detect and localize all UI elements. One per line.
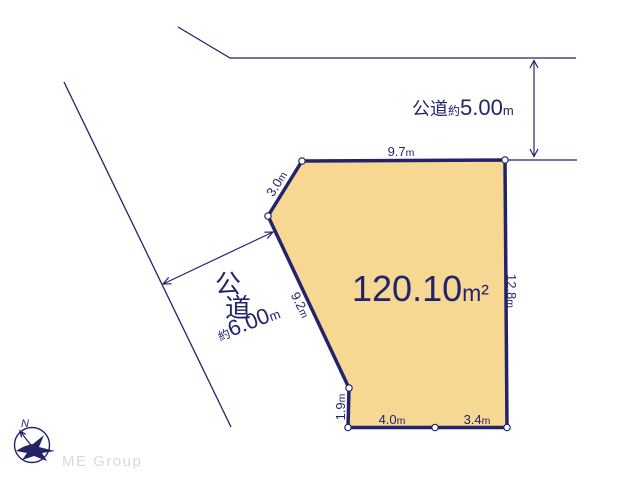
edge-label-bottom-left: 4.0m [379, 412, 406, 427]
left-road-label: 公 道 約6.00m [213, 269, 283, 346]
edge-label-lower-left: 1.9m [333, 393, 348, 420]
vertex-dot [504, 424, 510, 430]
plot-diagram: 120.10m² 9.7m 3.0m 9.2m 1.9m 4.0m 3.4m 1… [0, 0, 640, 480]
vertex-dot [346, 385, 352, 391]
plot-map-page: 120.10m² 9.7m 3.0m 9.2m 1.9m 4.0m 3.4m 1… [0, 0, 640, 480]
vertex-dot [502, 157, 508, 163]
edge-label-top: 9.7m [388, 144, 415, 159]
north-label: N [21, 418, 29, 430]
top-road-label: 公道約5.00m [412, 95, 514, 120]
top-road-upper-line [178, 27, 576, 58]
vertex-dot [265, 213, 271, 219]
edge-label-right: 12.8m [504, 274, 519, 308]
vertex-dot [345, 424, 351, 430]
left-road-line [64, 82, 231, 427]
compass: N [15, 418, 56, 463]
logo-text: ME Group [62, 453, 142, 470]
vertex-dot [432, 424, 438, 430]
edge-label-bottom-right: 3.4m [464, 412, 491, 427]
vertex-dot [299, 158, 305, 164]
north-arrow [20, 431, 33, 448]
